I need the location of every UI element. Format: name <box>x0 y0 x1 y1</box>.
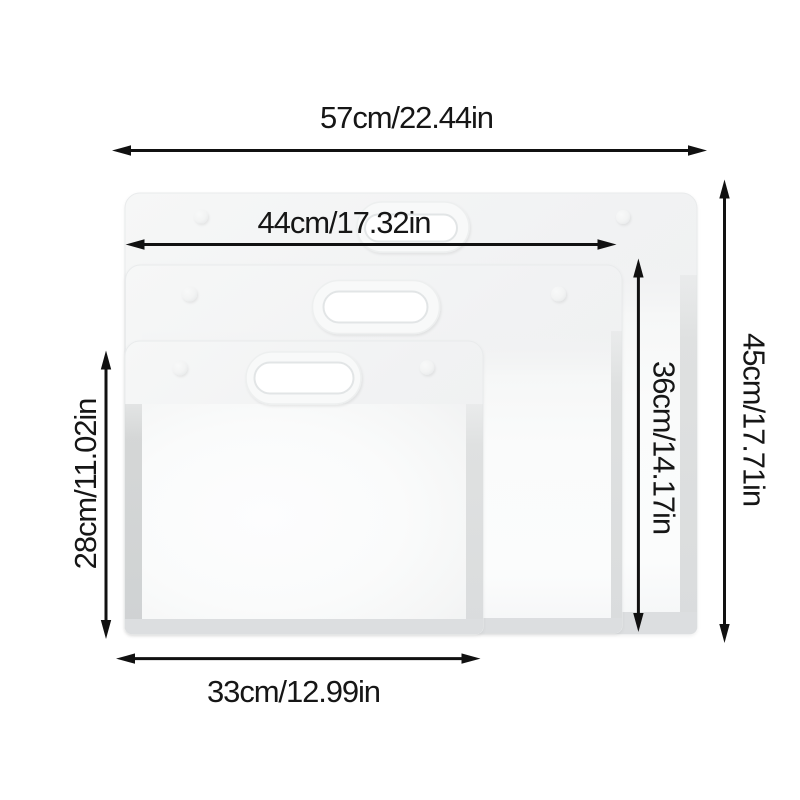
svg-text:45cm/17.71in: 45cm/17.71in <box>737 333 772 506</box>
svg-text:44cm/17.32in: 44cm/17.32in <box>258 205 431 240</box>
svg-text:36cm/14.17in: 36cm/14.17in <box>647 361 682 534</box>
svg-text:28cm/11.02in: 28cm/11.02in <box>68 399 103 570</box>
svg-text:57cm/22.44in: 57cm/22.44in <box>320 100 493 135</box>
svg-text:33cm/12.99in: 33cm/12.99in <box>207 674 380 709</box>
